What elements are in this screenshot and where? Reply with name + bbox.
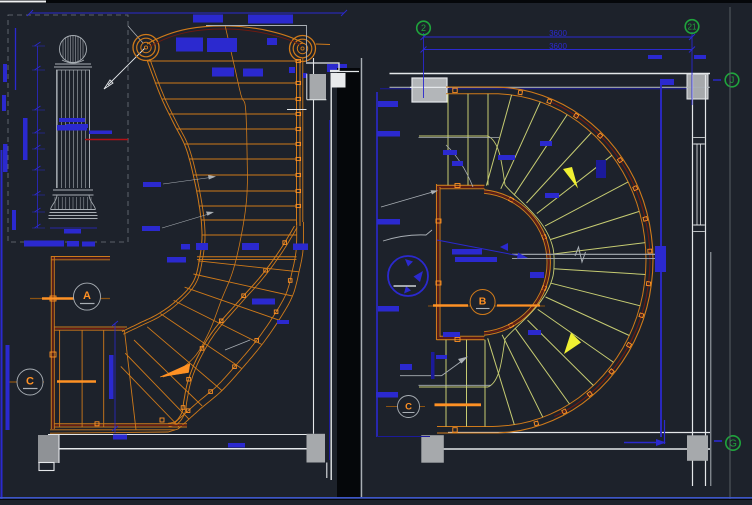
svg-text:B: B	[479, 296, 487, 308]
svg-text:3600: 3600	[549, 29, 567, 38]
svg-text:21: 21	[688, 22, 697, 31]
svg-text:C: C	[26, 376, 34, 388]
svg-text:3600: 3600	[549, 42, 567, 51]
svg-text:C: C	[405, 402, 412, 413]
svg-text:2: 2	[421, 23, 426, 33]
svg-text:A: A	[83, 290, 91, 302]
